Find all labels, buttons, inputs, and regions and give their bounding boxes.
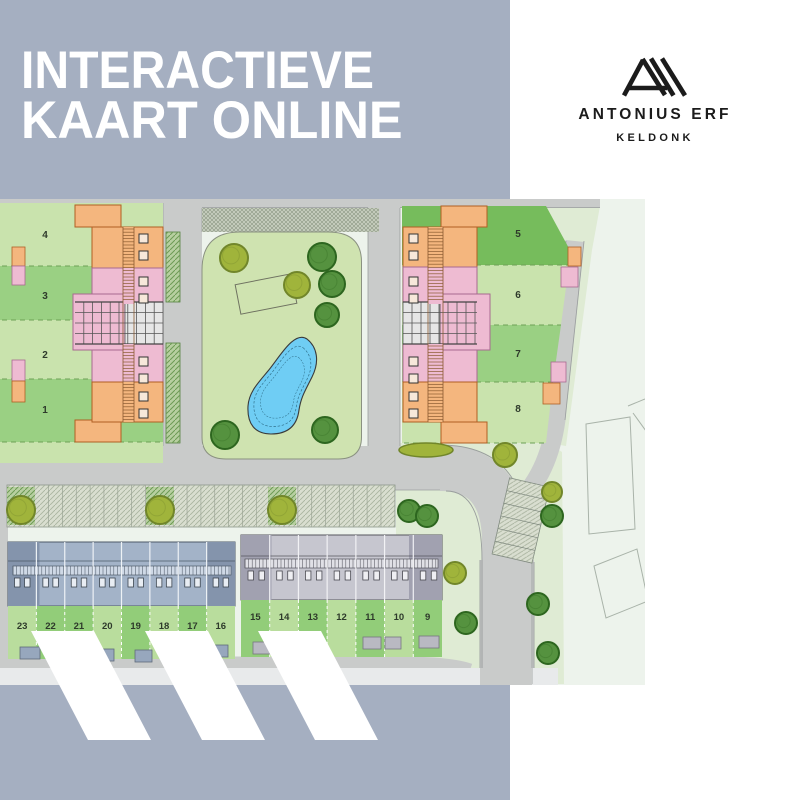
svg-text:8: 8 [515, 404, 521, 415]
svg-text:2: 2 [42, 350, 48, 361]
svg-text:ANTONIUS ERF: ANTONIUS ERF [578, 106, 731, 123]
svg-text:10: 10 [394, 612, 405, 623]
svg-text:12: 12 [336, 612, 347, 623]
svg-text:19: 19 [130, 621, 141, 632]
svg-text:3: 3 [42, 291, 48, 302]
svg-text:13: 13 [307, 612, 318, 623]
svg-text:15: 15 [250, 612, 261, 623]
svg-text:20: 20 [102, 621, 113, 632]
svg-text:23: 23 [17, 621, 28, 632]
svg-text:16: 16 [216, 621, 227, 632]
svg-text:5: 5 [515, 229, 521, 240]
svg-text:4: 4 [42, 230, 48, 241]
svg-text:9: 9 [425, 612, 430, 623]
svg-text:11: 11 [365, 612, 376, 623]
svg-text:KELDONK: KELDONK [616, 132, 694, 144]
svg-text:14: 14 [279, 612, 290, 623]
svg-text:1: 1 [42, 405, 48, 416]
svg-text:7: 7 [515, 349, 521, 360]
svg-text:6: 6 [515, 290, 521, 301]
